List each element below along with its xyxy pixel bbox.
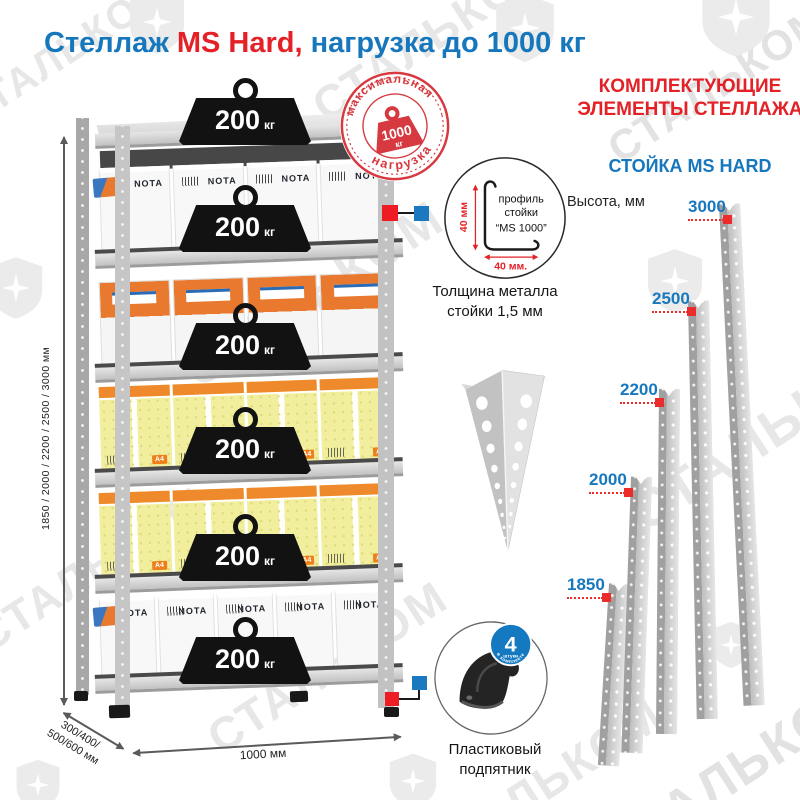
components-header-line2: ЭЛЕМЕНТЫ СТЕЛЛАЖА	[575, 99, 800, 122]
post-2200	[656, 389, 680, 734]
post-height-value: 2000	[589, 471, 635, 488]
thickness-caption-line1: Толщина металла	[422, 282, 568, 302]
width-dimension-label: 1000 мм	[223, 745, 304, 763]
plastic-foot-diagram: 4 штуки в комплекте	[432, 619, 550, 742]
shelf-post-back-left	[76, 118, 89, 695]
marker-blue-square	[414, 206, 429, 221]
page-title: Стеллаж MS Hard, нагрузка до 1000 кг	[44, 27, 586, 60]
weight-value: 200	[215, 332, 260, 359]
profile-text-line3: “MS 1000”	[496, 222, 547, 234]
profile-text-line1: профиль	[499, 194, 545, 206]
components-header-line1: КОМПЛЕКТУЮЩИЕ	[575, 76, 800, 99]
marker-red-square	[723, 215, 732, 224]
weight-200kg-icon: 200кг	[179, 407, 311, 469]
weight-unit: кг	[264, 225, 275, 239]
title-part-blue2: нагрузка до 1000 кг	[303, 27, 586, 59]
post-height-value: 1850	[567, 576, 613, 593]
box-brand-label: NOTA	[134, 178, 163, 189]
weight-unit: кг	[264, 554, 275, 568]
shield-watermark-icon	[15, 758, 61, 800]
box-yellow: A4	[99, 491, 173, 578]
box-brand-label: NOTA	[281, 173, 310, 184]
post-height-value: 2200	[620, 381, 666, 398]
dotted-leader-line	[589, 492, 625, 494]
post-height-value: 3000	[688, 198, 734, 215]
badge-number: 4	[505, 631, 517, 656]
foot-caption-line2: подпятник	[428, 760, 562, 780]
post-2500	[688, 301, 718, 719]
marker-red-square	[602, 593, 611, 602]
corner-post-image	[452, 356, 558, 567]
weight-value: 200	[215, 436, 260, 463]
shield-watermark-icon	[0, 255, 44, 321]
quantity-badge: 4 штуки в комплекте	[490, 624, 531, 665]
thickness-caption: Толщина металла стойки 1,5 мм	[422, 282, 568, 321]
barcode-icon	[328, 554, 344, 564]
connector-line	[398, 698, 420, 700]
marker-red-square	[655, 398, 664, 407]
box-label	[260, 286, 304, 300]
marker-blue-square	[412, 676, 427, 690]
infographic-canvas: СТАЛЬКОМ СТАЛЬКОМ СТАЛЬКОМ СТАЛЬКОМ СТАЛ…	[0, 0, 800, 800]
post-height-label-1850: 1850	[567, 576, 613, 599]
post-height-label-2000: 2000	[589, 471, 635, 494]
profile-dim-horizontal: 40 мм.	[494, 262, 527, 273]
box-brand-label: NOTA	[237, 603, 266, 614]
barcode-icon	[329, 172, 345, 182]
title-part-red: MS Hard,	[177, 27, 303, 59]
box-label	[186, 288, 230, 302]
plastic-foot	[109, 705, 130, 719]
post-height-label-2200: 2200	[620, 381, 666, 404]
badge-word: штуки	[503, 654, 518, 659]
post-height-label-3000: 3000	[688, 198, 734, 221]
plastic-foot	[384, 707, 399, 717]
weight-value: 200	[215, 107, 260, 134]
box-brand-label: NOTA	[296, 601, 325, 612]
shield-watermark-icon	[700, 0, 772, 59]
profile-text-line2: стойки	[504, 207, 538, 219]
marker-red-square	[385, 692, 399, 706]
barcode-icon	[328, 448, 344, 458]
title-part-blue: Стеллаж	[44, 27, 177, 59]
weight-value: 200	[215, 543, 260, 570]
height-units-label: Высота, мм	[567, 194, 645, 210]
profile-dim-vertical: 40 мм	[459, 202, 470, 232]
connector-line	[418, 690, 420, 700]
weight-unit: кг	[264, 118, 275, 132]
paper-size-label: A4	[152, 455, 167, 465]
weight-200kg-icon: 200кг	[179, 78, 311, 140]
foot-caption-line1: Пластиковый	[428, 740, 562, 760]
dotted-leader-line	[688, 219, 724, 221]
weight-unit: кг	[264, 657, 275, 671]
marker-red-square	[382, 205, 398, 221]
box-yellow: A4	[99, 385, 173, 472]
plastic-foot	[290, 691, 308, 703]
components-header: КОМПЛЕКТУЮЩИЕ ЭЛЕМЕНТЫ СТЕЛЛАЖА	[575, 76, 800, 122]
weight-200kg-icon: 200кг	[179, 514, 311, 576]
weight-200kg-icon: 200кг	[179, 185, 311, 247]
weight-unit: кг	[264, 447, 275, 461]
marker-red-square	[624, 488, 633, 497]
foot-caption: Пластиковый подпятник	[428, 740, 562, 779]
height-dimension-label: 1850 / 2000 / 2200 / 2500 / 3000 мм	[40, 310, 52, 530]
post-height-value: 2500	[652, 290, 698, 307]
box-brand-label: NOTA	[178, 605, 207, 616]
weight-value: 200	[215, 214, 260, 241]
dotted-leader-line	[620, 402, 656, 404]
paper-size-label: A4	[152, 561, 167, 571]
weight-200kg-icon: 200кг	[179, 617, 311, 679]
height-dimension-line	[63, 137, 65, 705]
connector-line	[396, 212, 416, 214]
shelf-post-front-left	[115, 126, 130, 712]
post-section-title: СТОЙКА MS HARD	[575, 156, 800, 177]
thickness-caption-line2: стойки 1,5 мм	[422, 302, 568, 322]
box-label	[333, 283, 377, 297]
barcode-icon	[255, 174, 271, 184]
dotted-leader-line	[567, 597, 603, 599]
post-profile-diagram: 40 мм 40 мм. профиль стойки “MS 1000”	[443, 156, 567, 285]
weight-value: 200	[215, 646, 260, 673]
box-orange	[99, 280, 173, 367]
weight-unit: кг	[264, 343, 275, 357]
weight-200kg-icon: 200кг	[179, 303, 311, 365]
dotted-leader-line	[652, 311, 688, 313]
marker-red-square	[687, 307, 696, 316]
post-height-label-2500: 2500	[652, 290, 698, 313]
plastic-foot	[74, 691, 88, 701]
